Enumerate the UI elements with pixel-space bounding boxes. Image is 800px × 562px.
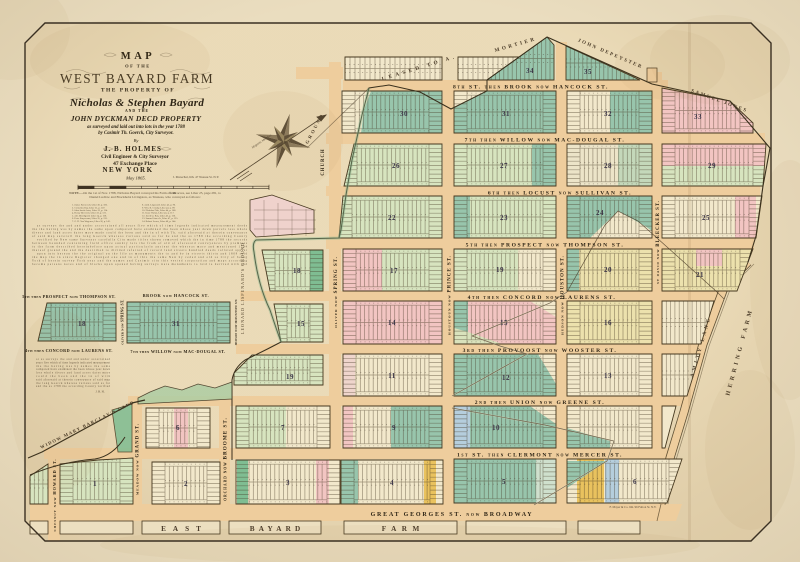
svg-text:NEW YORK: NEW YORK bbox=[102, 166, 153, 174]
svg-text:29: 29 bbox=[708, 162, 716, 170]
svg-text:7. G. H. Van Wagenen, Liber 36: 7. G. H. Van Wagenen, Liber 36, p. 142. bbox=[72, 220, 111, 223]
svg-text:9: 9 bbox=[392, 424, 396, 432]
svg-text:13: 13 bbox=[604, 372, 612, 380]
svg-text:12: 12 bbox=[502, 374, 510, 382]
svg-text:7TH THEN WILLOW NOW MAC-DOUGAL: 7TH THEN WILLOW NOW MAC-DOUGAL ST. bbox=[130, 349, 225, 354]
svg-text:HUDSON NOW HOUSTON ST.: HUDSON NOW HOUSTON ST. bbox=[234, 299, 238, 345]
svg-text:21: 21 bbox=[696, 271, 704, 279]
svg-text:by Casimir Th. Goerck, City Su: by Casimir Th. Goerck, City Surveyor. bbox=[98, 131, 173, 136]
svg-text:6: 6 bbox=[176, 424, 180, 432]
svg-text:F. Mayer & Co. lith. 96 Fulton: F. Mayer & Co. lith. 96 Fulton St. N.Y. bbox=[610, 505, 657, 509]
svg-text:24: 24 bbox=[596, 209, 604, 217]
svg-text:28: 28 bbox=[604, 162, 612, 170]
svg-text:26: 26 bbox=[392, 162, 400, 170]
svg-text:31: 31 bbox=[502, 110, 510, 118]
svg-text:14: 14 bbox=[388, 319, 396, 327]
svg-text:33: 33 bbox=[694, 113, 702, 121]
svg-text:OLIVER NOW SPRING ST.: OLIVER NOW SPRING ST. bbox=[121, 299, 125, 344]
svg-text:19: 19 bbox=[496, 266, 504, 274]
svg-text:4: 4 bbox=[390, 479, 394, 487]
svg-text:7: 7 bbox=[281, 424, 285, 432]
svg-text:34: 34 bbox=[526, 67, 534, 75]
svg-text:JOHN DYCKMAN DECD PROPERTY: JOHN DYCKMAN DECD PROPERTY bbox=[70, 114, 203, 123]
svg-text:30: 30 bbox=[400, 110, 408, 118]
svg-text:8TH ST. THEN BROOK NOW HANCOCK: 8TH ST. THEN BROOK NOW HANCOCK ST. bbox=[453, 85, 609, 91]
svg-text:1ST ST. THEN CLERMONT NOW MERC: 1ST ST. THEN CLERMONT NOW MERCER ST. bbox=[457, 453, 623, 459]
svg-text:6: 6 bbox=[633, 478, 637, 486]
svg-text:23: 23 bbox=[500, 214, 508, 222]
svg-text:10: 10 bbox=[492, 424, 500, 432]
svg-text:16: 16 bbox=[604, 319, 612, 327]
svg-text:Civil Engineer & City Surveyor: Civil Engineer & City Surveyor bbox=[101, 155, 169, 160]
svg-text:AND THE: AND THE bbox=[125, 109, 149, 113]
svg-text:20: 20 bbox=[604, 266, 612, 274]
svg-text:15: 15 bbox=[297, 320, 305, 328]
svg-text:2: 2 bbox=[184, 480, 188, 488]
svg-text:as surveyed and laid out into: as surveyed and laid out into lots in th… bbox=[87, 125, 185, 130]
svg-text:By: By bbox=[134, 138, 139, 143]
svg-text:32: 32 bbox=[604, 110, 612, 118]
svg-text:GREAT GEORGES ST. NOW BROADWAY: GREAT GEORGES ST. NOW BROADWAY bbox=[371, 512, 534, 518]
svg-text:18: 18 bbox=[293, 267, 301, 275]
svg-text:BROOK NOW HANCOCK ST.: BROOK NOW HANCOCK ST. bbox=[143, 293, 209, 298]
svg-text:5: 5 bbox=[502, 478, 506, 486]
svg-text:31: 31 bbox=[172, 320, 180, 328]
svg-text:3: 3 bbox=[286, 479, 290, 487]
svg-text:5TH THEN PROSPECT NOW THOMPSON: 5TH THEN PROSPECT NOW THOMPSON ST. bbox=[22, 294, 116, 299]
svg-text:19: 19 bbox=[286, 373, 294, 381]
svg-text:11: 11 bbox=[388, 372, 396, 380]
svg-text:become persons notes and of bl: become persons notes and of blocks upon … bbox=[32, 263, 248, 266]
svg-text:1: 1 bbox=[93, 480, 97, 488]
svg-text:17: 17 bbox=[390, 267, 398, 275]
svg-text:May 1865.: May 1865. bbox=[125, 176, 146, 181]
svg-text:27: 27 bbox=[500, 162, 508, 170]
svg-text:25: 25 bbox=[702, 214, 710, 222]
svg-text:J. B. HOLMES: J. B. HOLMES bbox=[104, 145, 162, 153]
svg-text:35: 35 bbox=[584, 68, 592, 76]
svg-text:22: 22 bbox=[388, 214, 396, 222]
svg-text:14. Robert Lenox, Liber 48, p.: 14. Robert Lenox, Liber 48, p. 144. bbox=[142, 220, 176, 223]
